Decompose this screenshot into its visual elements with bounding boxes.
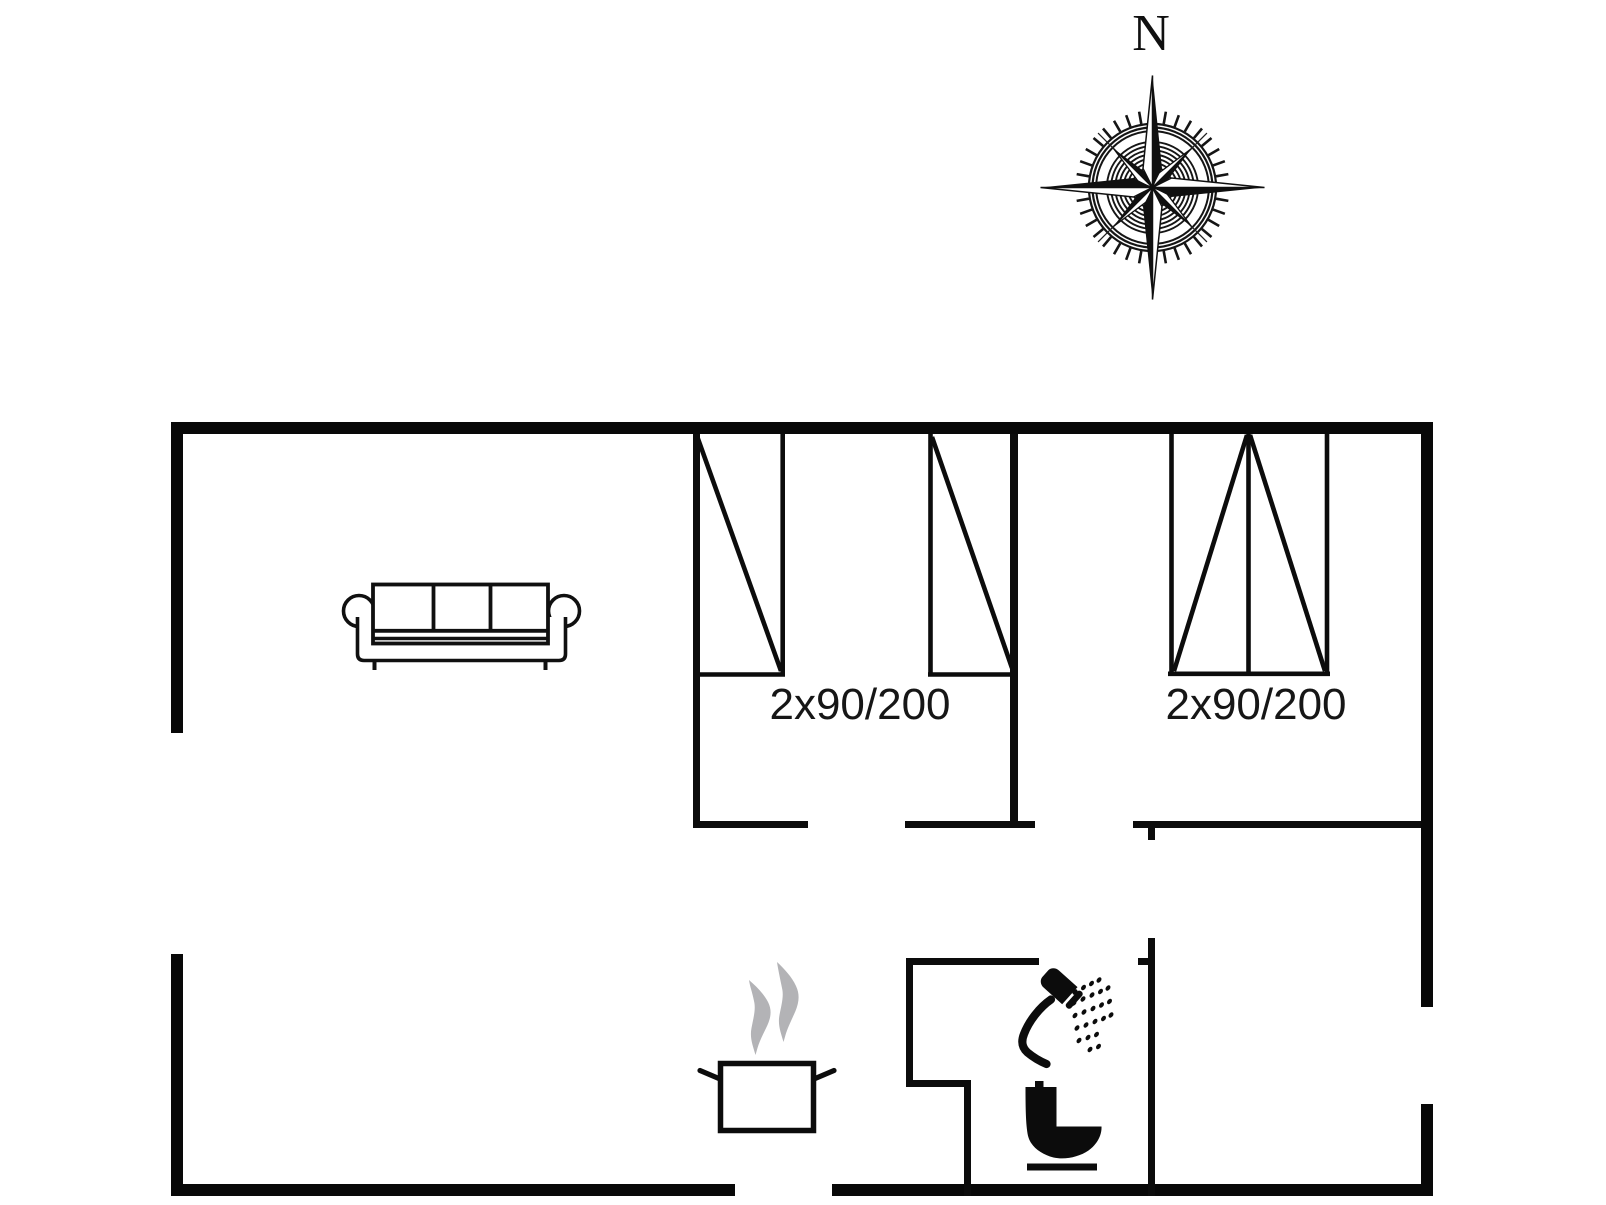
svg-text:2x90/200: 2x90/200 <box>1165 680 1346 729</box>
svg-text:2x90/200: 2x90/200 <box>769 680 950 729</box>
svg-text:N: N <box>1132 5 1170 62</box>
